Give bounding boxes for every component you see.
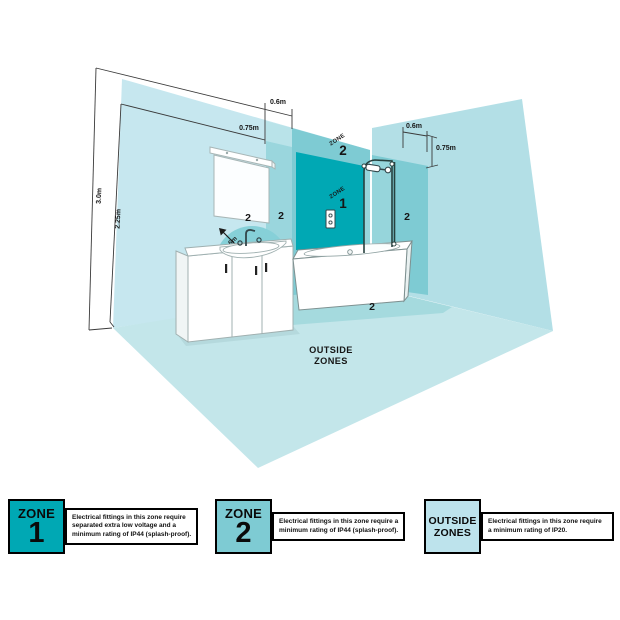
marker-floor: 2 bbox=[369, 301, 375, 313]
legend-zone2-box: ZONE 2 bbox=[215, 499, 272, 554]
door-handle bbox=[255, 266, 257, 275]
svg-text:2: 2 bbox=[339, 143, 347, 158]
legend-zone2: ZONE 2 Electrical fittings in this zone … bbox=[215, 499, 405, 554]
dim-right-drop-label: 0.75m bbox=[436, 145, 456, 152]
dim-wall-height-label: 3.0m bbox=[96, 188, 104, 204]
legend-outside-line1: Electrical fittings in this zone require bbox=[488, 518, 608, 526]
legend-outside-word1: OUTSIDE bbox=[428, 515, 476, 527]
legend-zone1-description: Electrical fittings in this zone require… bbox=[65, 508, 198, 545]
svg-text:1: 1 bbox=[339, 196, 347, 211]
legend-outside-description: Electrical fittings in this zone require… bbox=[481, 512, 614, 540]
bathroom-zones-diagram-page: 0.6m 0.75m 3.0m 2.25m 0.6m 0.75m 0.6m bbox=[0, 0, 620, 620]
legend-zone1-number: 1 bbox=[28, 520, 44, 547]
outside-zones-floor-label: OUTSIDE ZONES bbox=[309, 345, 353, 366]
back-wall-zone1 bbox=[296, 152, 364, 256]
bathtub bbox=[293, 241, 412, 310]
svg-text:ZONES: ZONES bbox=[314, 356, 348, 366]
dim-zone-height-label: 2.25m bbox=[114, 209, 122, 229]
door-handle bbox=[225, 264, 227, 273]
marker-left-strip: 2 bbox=[278, 210, 284, 222]
legend-zone2-line1: Electrical fittings in this zone require… bbox=[279, 518, 399, 526]
shower-control-panel bbox=[326, 210, 335, 228]
dim-left-width-label: 0.6m bbox=[270, 99, 286, 106]
legend-outside-zones: OUTSIDE ZONES Electrical fittings in thi… bbox=[424, 499, 614, 554]
svg-text:OUTSIDE: OUTSIDE bbox=[309, 345, 353, 355]
vanity-unit bbox=[176, 230, 300, 346]
dim-left-drop-label: 0.75m bbox=[239, 125, 259, 132]
marker-right-band: 2 bbox=[404, 211, 410, 223]
drain-icon bbox=[348, 250, 353, 255]
door-handle bbox=[265, 263, 267, 272]
dim-right-width-label: 0.6m bbox=[406, 123, 422, 130]
legend-zone1-box: ZONE 1 bbox=[8, 499, 65, 554]
legend-zone1-line3: minimum rating of IP44 (splash-proof). bbox=[72, 531, 192, 539]
legend-zone2-description: Electrical fittings in this zone require… bbox=[272, 512, 405, 540]
legend-zone2-number: 2 bbox=[235, 520, 251, 547]
legend-zone2-line2: minimum rating of IP44 (splash-proof). bbox=[279, 527, 399, 535]
shower-screen bbox=[362, 160, 396, 253]
marker-semicircle: 2 bbox=[245, 212, 251, 224]
legend-outside-box: OUTSIDE ZONES bbox=[424, 499, 481, 554]
legend-outside-word2: ZONES bbox=[434, 527, 471, 539]
legend-zone1-line1: Electrical fittings in this zone require bbox=[72, 514, 192, 522]
legend-zone1-line2: separated extra low voltage and a bbox=[72, 522, 192, 530]
legend-outside-line2: a minimum rating of IP20. bbox=[488, 527, 608, 535]
legend-zone1: ZONE 1 Electrical fittings in this zone … bbox=[8, 499, 198, 554]
